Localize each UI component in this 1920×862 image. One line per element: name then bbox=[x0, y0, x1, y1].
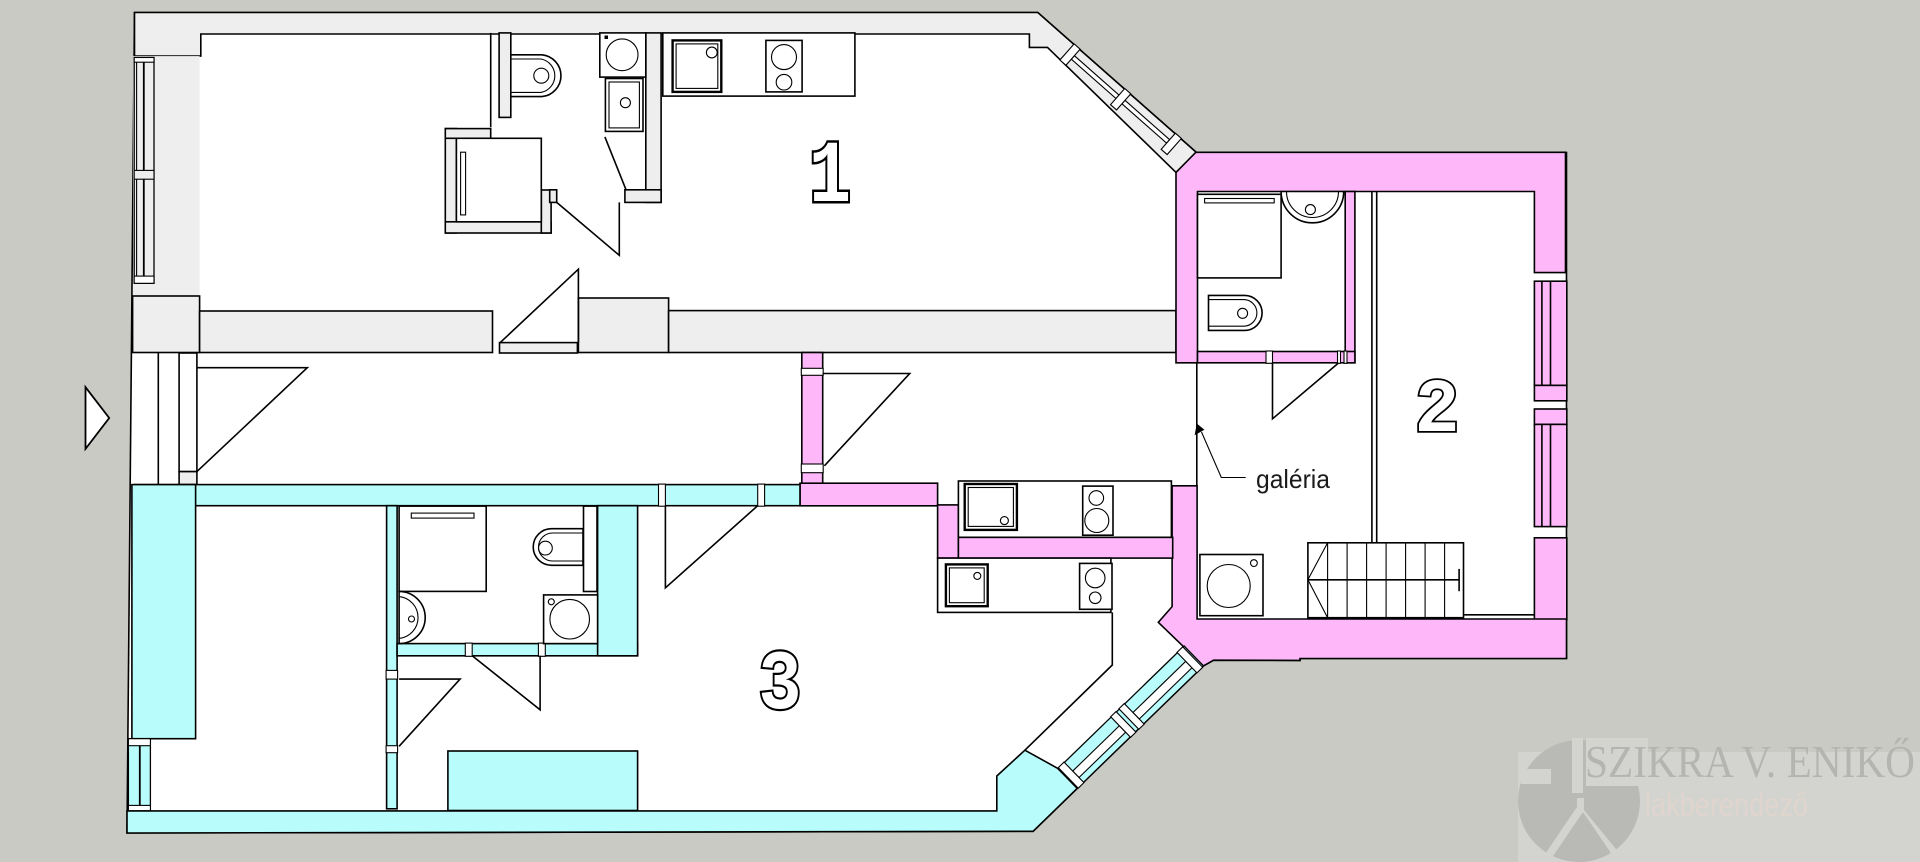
svg-text:galéria: galéria bbox=[1256, 464, 1331, 494]
svg-text:1: 1 bbox=[809, 129, 851, 228]
svg-text:lakberendező: lakberendező bbox=[1645, 786, 1808, 823]
svg-text:2: 2 bbox=[1415, 368, 1460, 454]
svg-text:SZIKRA V. ENIKŐ: SZIKRA V. ENIKŐ bbox=[1585, 736, 1915, 787]
svg-text:3: 3 bbox=[759, 639, 802, 734]
